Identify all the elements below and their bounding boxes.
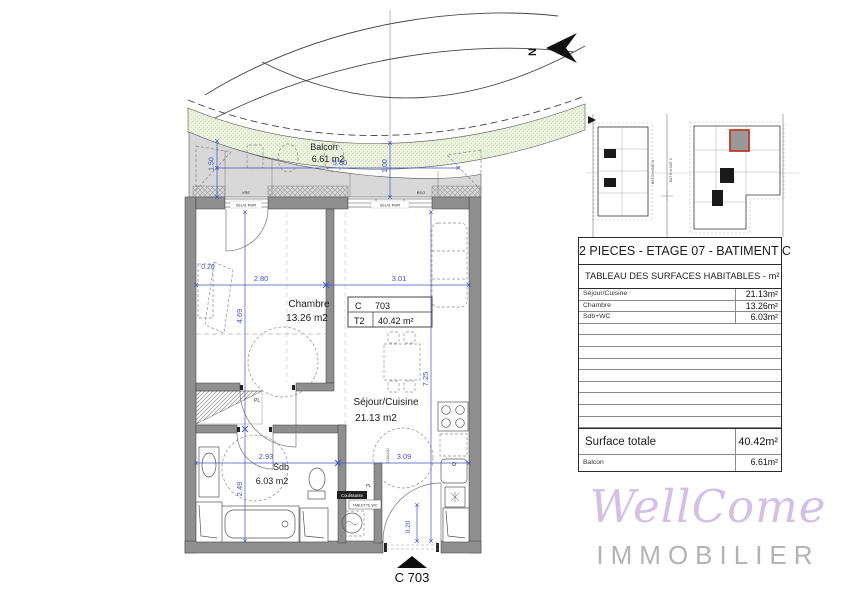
row-value: 13.26m²: [735, 301, 781, 312]
table-row-empty: [579, 405, 781, 417]
balcony-row-value: 6.61m²: [735, 455, 781, 471]
row-label: Séjour/Cuisine: [579, 289, 735, 300]
walls: [185, 197, 481, 553]
seuil-right-label: SEUIL PMR: [380, 204, 401, 208]
dim-280: 2.80: [254, 274, 269, 283]
sdb-name: Sdb: [273, 462, 289, 472]
table-row-balcony: Balcon 6.61m²: [579, 455, 781, 471]
placard: PL: [196, 391, 262, 424]
keyplan: BAT B et BAT A BAT B et BAT C: [586, 114, 800, 237]
total-label: Surface totale: [579, 429, 735, 454]
fixtures: [196, 402, 469, 542]
bso-label: BSO: [417, 190, 425, 195]
dim-249: 2.49: [235, 482, 244, 497]
dim-580: 5.80: [333, 158, 348, 167]
table-row: Séjour/Cuisine 21.13m²: [579, 289, 781, 301]
dimension-texts: 1.50 5.80 1.00 0.20 2.80 3.01 4.69 2.49 …: [201, 157, 430, 533]
table-row-empty: [579, 359, 781, 371]
floorplan-page: Balcon 6.61 m2: [0, 0, 843, 595]
table-row-empty: [579, 417, 781, 429]
dim-150: 1.50: [209, 157, 216, 171]
agency-logo-subtitle: IMMOBILIER: [575, 540, 841, 570]
dim-301: 3.01: [392, 274, 407, 283]
keyplan-building-a: BAT B et BAT A: [588, 116, 655, 220]
unit-building: C: [355, 301, 362, 311]
dim-469: 4.69: [235, 309, 244, 324]
surface-table-panel: 2 PIECES - ETAGE 07 - BATIMENT C TABLEAU…: [578, 237, 782, 472]
coulissante-label: Coulissante: [341, 493, 364, 498]
agency-logo-script: WellCome: [575, 476, 841, 538]
sdb-area: 6.03 m2: [256, 476, 289, 486]
row-value: 21.13m²: [735, 289, 781, 300]
unit-type: T2: [354, 316, 365, 326]
chambre-name: Chambre: [288, 299, 330, 310]
bed-size-label: 120x220: [385, 448, 390, 464]
table-header: TABLEAU DES SURFACES HABITABLES - m²: [579, 265, 781, 289]
balcony-row-label: Balcon: [579, 455, 735, 471]
dim-293: 2.93: [259, 452, 274, 461]
table-row: Chambre 13.26m²: [579, 301, 781, 313]
north-arrow: N: [527, 33, 577, 63]
table-row-empty: [579, 335, 781, 347]
entrance-threshold: [386, 545, 438, 549]
dim-020-top: 0.20: [201, 264, 215, 271]
table-row: Sdb+WC 6.03m²: [579, 312, 781, 324]
row-label: Chambre: [579, 301, 735, 312]
entrance-unit-label: C 703: [395, 570, 430, 585]
placard-label: PL: [254, 398, 260, 404]
balcony-name: Balcon: [310, 142, 338, 152]
dim-725: 7.25: [421, 372, 430, 387]
entrance-marker: C 703: [395, 556, 430, 585]
vre-label: VRE: [242, 190, 251, 195]
total-value: 40.42m²: [735, 429, 781, 454]
seuil-left-label: SEUIL PMR: [236, 204, 257, 208]
table-row-empty: [579, 382, 781, 394]
pl-wc-label: PL: [366, 483, 372, 488]
keyplan-highlighted-unit: [730, 130, 749, 151]
table-row-empty: [579, 347, 781, 359]
sejour-area: 21.13 m2: [355, 413, 397, 424]
dim-309: 3.09: [397, 452, 412, 461]
row-label: Sdb+WC: [579, 312, 735, 323]
row-value: 6.03m²: [735, 312, 781, 323]
sejour-name: Séjour/Cuisine: [353, 397, 418, 408]
table-row-total: Surface totale 40.42m²: [579, 428, 781, 455]
chambre-area: 13.26 m2: [286, 313, 328, 324]
keyplan-label-left: BAT B et BAT A: [651, 159, 655, 184]
agency-logo: WellCome IMMOBILIER: [575, 476, 841, 570]
panel-title: 2 PIECES - ETAGE 07 - BATIMENT C: [579, 238, 781, 265]
dim-100: 1.00: [382, 159, 389, 173]
tablette-wc-label: TABLETTE WC: [353, 504, 378, 508]
unit-number: 703: [375, 301, 390, 311]
table-row-empty: [579, 370, 781, 382]
unit-area: 40.42 m²: [378, 316, 414, 326]
table-row-empty: [579, 324, 781, 336]
table-row-empty: [579, 393, 781, 405]
keyplan-label-right: BAT B et BAT C: [669, 157, 673, 182]
unit-label-box: C 703 T2 40.42 m²: [348, 297, 432, 327]
north-letter: N: [527, 48, 539, 56]
dim-020-entrance: 0.20: [405, 520, 412, 533]
keyplan-building-c: BAT B et BAT C: [669, 122, 784, 233]
